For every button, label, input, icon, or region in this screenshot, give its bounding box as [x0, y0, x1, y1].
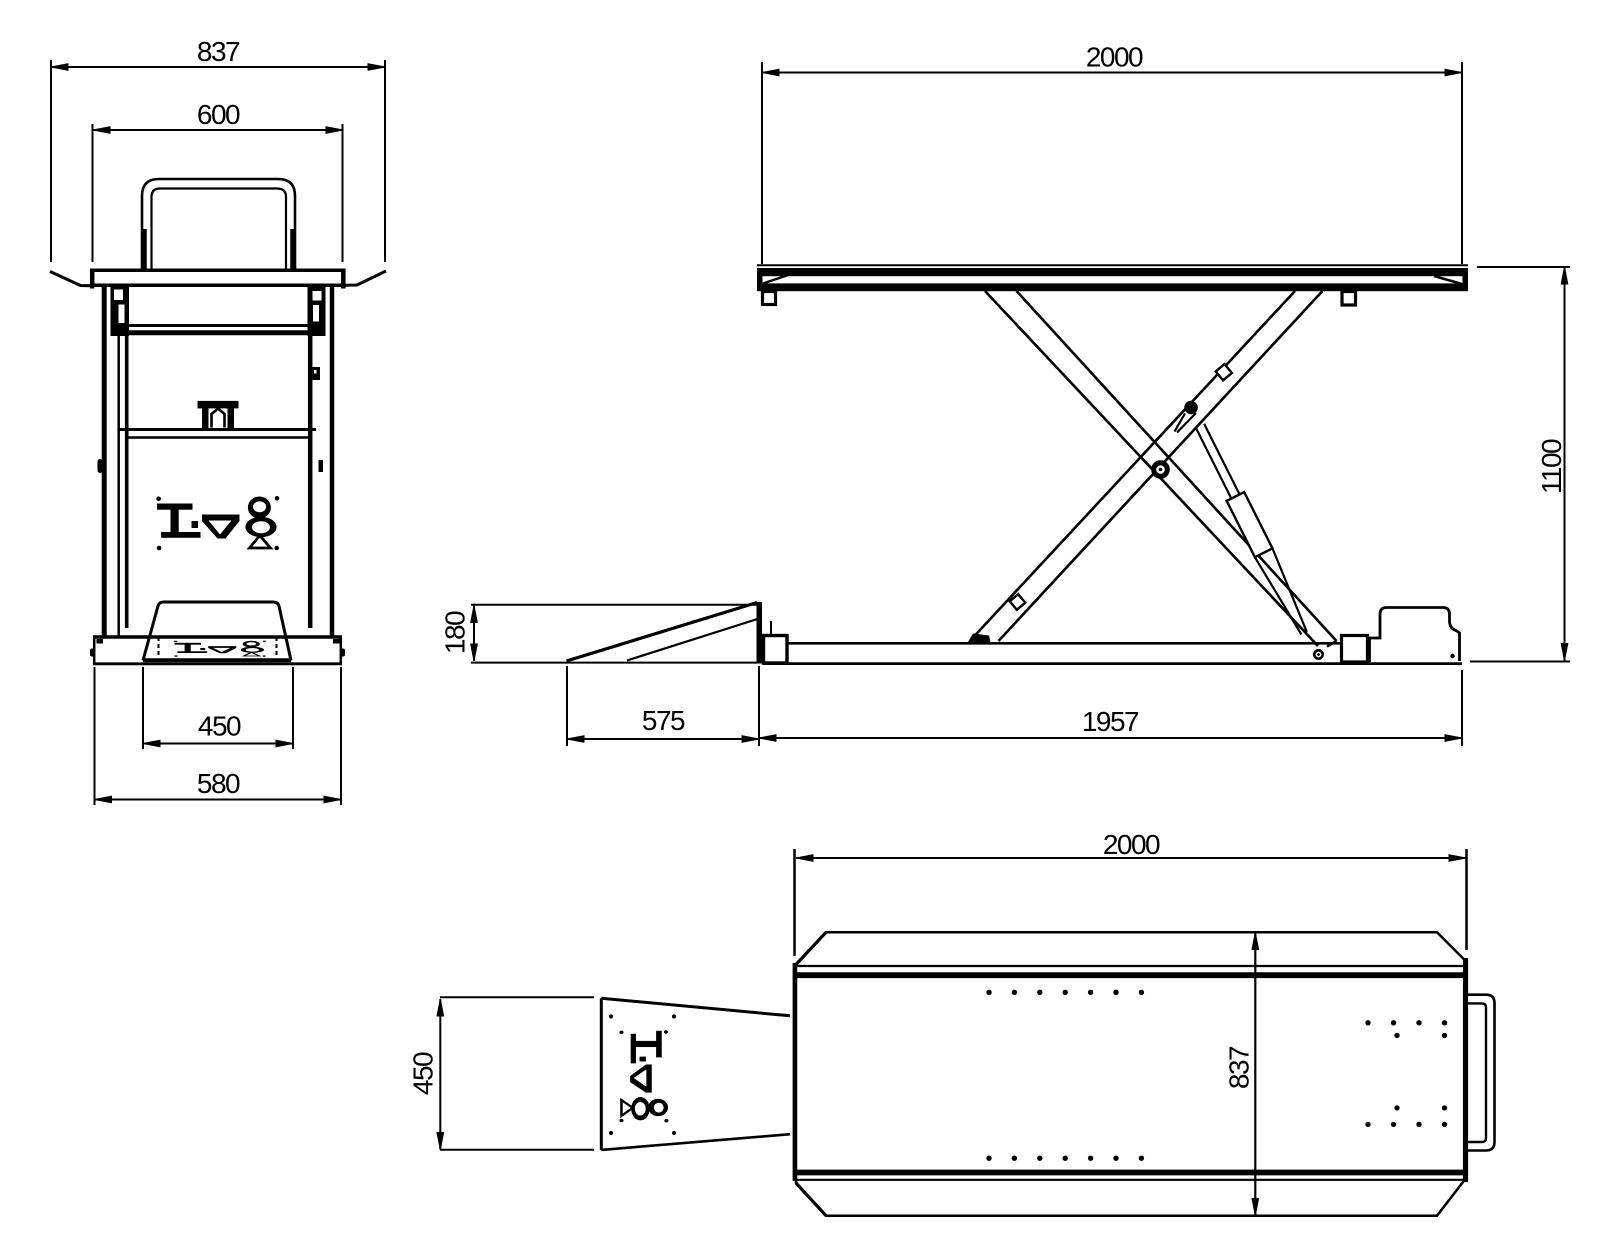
svg-text:2000: 2000 [1103, 829, 1160, 860]
svg-text:2000: 2000 [1086, 42, 1143, 73]
svg-text:837: 837 [1224, 1046, 1255, 1089]
svg-text:1957: 1957 [1082, 706, 1139, 737]
svg-text:600: 600 [197, 99, 240, 130]
svg-text:837: 837 [197, 36, 240, 67]
svg-text:180: 180 [440, 611, 471, 654]
svg-text:450: 450 [198, 711, 241, 742]
svg-text:575: 575 [642, 705, 685, 736]
svg-text:580: 580 [197, 768, 240, 799]
svg-text:1100: 1100 [1536, 439, 1567, 494]
svg-text:450: 450 [408, 1052, 439, 1095]
